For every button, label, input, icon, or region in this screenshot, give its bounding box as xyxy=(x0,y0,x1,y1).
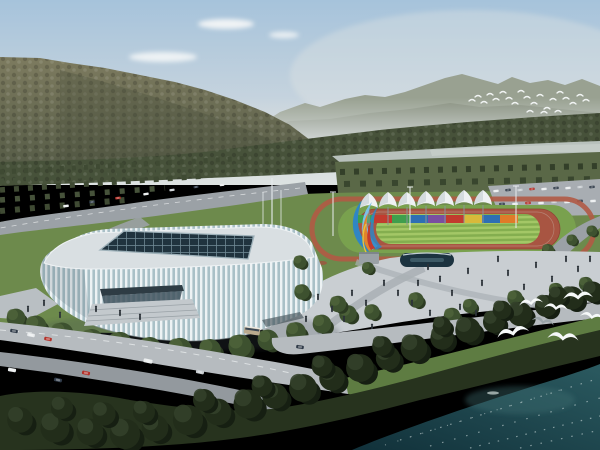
rendering-image xyxy=(0,0,600,450)
rainbow-panel-wall xyxy=(356,215,518,223)
scene-svg xyxy=(0,0,600,450)
